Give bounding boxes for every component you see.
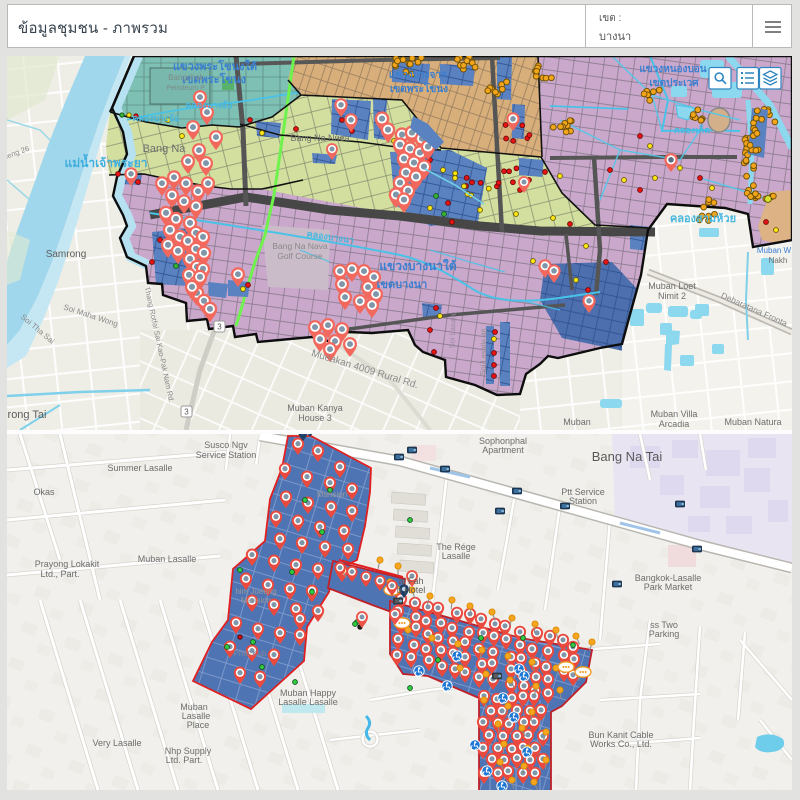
- svg-text:Bang Na Tai: Bang Na Tai: [592, 449, 663, 464]
- svg-text:Apartment: Apartment: [482, 445, 524, 455]
- svg-text:Bang Na: Bang Na: [143, 143, 187, 155]
- svg-text:เขตบางนา: เขตบางนา: [377, 279, 428, 291]
- svg-text:Works Co., Ltd.: Works Co., Ltd.: [590, 739, 652, 749]
- svg-text:rong Tai: rong Tai: [8, 409, 47, 421]
- svg-text:Susco Ngv: Susco Ngv: [204, 440, 248, 450]
- svg-text:แม่น้ำเจ้าพระยา: แม่น้ำเจ้าพระยา: [64, 153, 147, 170]
- svg-text:Soi Lasalle 46: Soi Lasalle 46: [478, 328, 489, 375]
- svg-text:Bang Na Nava: Bang Na Nava: [272, 241, 328, 251]
- svg-text:คลองสามห้วย: คลองสามห้วย: [670, 212, 736, 225]
- svg-text:Lasalle Lasalle: Lasalle Lasalle: [278, 697, 338, 707]
- svg-text:him Jueang: him Jueang: [235, 587, 276, 596]
- svg-text:Phet Kub: Phet Kub: [234, 649, 267, 658]
- svg-text:Very Lasalle: Very Lasalle: [92, 738, 141, 748]
- svg-text:Ltd., Part.: Ltd., Part.: [40, 569, 79, 579]
- svg-text:แขวงบางจาก: แขวงบางจาก: [389, 70, 447, 81]
- svg-text:Soi Lasalle: Soi Lasalle: [447, 311, 457, 348]
- svg-text:Parking: Parking: [649, 629, 680, 639]
- svg-text:Muban Natura: Muban Natura: [724, 417, 781, 427]
- svg-text:Station: Station: [569, 496, 597, 506]
- svg-text:Muban W: Muban W: [757, 246, 792, 255]
- svg-text:คลองบางอ้อ: คลองบางอ้อ: [132, 113, 179, 123]
- svg-text:Summer Lasalle: Summer Lasalle: [107, 463, 172, 473]
- svg-text:Muban Loet: Muban Loet: [648, 281, 696, 291]
- svg-text:Arcadia: Arcadia: [659, 419, 690, 429]
- svg-text:Samrong: Samrong: [46, 249, 87, 260]
- svg-text:Prayong Lokakit: Prayong Lokakit: [35, 559, 100, 569]
- svg-text:แขวงบางนาใต้: แขวงบางนาใต้: [379, 258, 457, 273]
- svg-text:Park Market: Park Market: [644, 582, 693, 592]
- svg-text:3: 3: [217, 323, 222, 332]
- svg-text:Ltd. Part.: Ltd. Part.: [166, 755, 203, 765]
- svg-text:คลองเค็ด: คลองเค็ด: [674, 123, 710, 135]
- svg-text:Bangchak: Bangchak: [168, 73, 205, 82]
- svg-text:เขตประเวศ: เขตประเวศ: [649, 77, 699, 89]
- svg-text:b Hotel: b Hotel: [397, 585, 426, 595]
- svg-text:Lasalle: Lasalle: [442, 551, 471, 561]
- svg-text:Mansion: Mansion: [241, 596, 271, 605]
- svg-text:Place: Place: [187, 720, 210, 730]
- svg-text:3: 3: [184, 408, 189, 417]
- svg-text:Nimit 2: Nimit 2: [658, 291, 686, 301]
- svg-text:Golf Course: Golf Course: [277, 251, 323, 261]
- svg-text:เขตพระโขนง: เขตพระโขนง: [390, 82, 448, 95]
- svg-text:คลองบางอ้อ: คลองบางอ้อ: [185, 100, 232, 110]
- svg-text:Muban Villa: Muban Villa: [651, 409, 698, 419]
- svg-text:Muban Lasalle: Muban Lasalle: [138, 554, 197, 564]
- svg-text:แขวงพระโขนงใต้: แขวงพระโขนงใต้: [173, 59, 257, 73]
- svg-text:แขวงหนองบอน: แขวงหนองบอน: [639, 64, 706, 75]
- svg-text:Okas: Okas: [33, 487, 55, 497]
- svg-text:Muban Kanya: Muban Kanya: [287, 403, 343, 413]
- svg-text:Nakh: Nakh: [769, 256, 788, 265]
- svg-text:Muban: Muban: [563, 417, 591, 427]
- svg-text:Bang Na Nuea: Bang Na Nuea: [290, 133, 349, 143]
- svg-text:Mansion: Mansion: [317, 490, 347, 499]
- svg-text:House 3: House 3: [298, 413, 332, 423]
- svg-text:Service Station: Service Station: [196, 450, 257, 460]
- svg-text:Petroleum P.: Petroleum P.: [166, 85, 206, 92]
